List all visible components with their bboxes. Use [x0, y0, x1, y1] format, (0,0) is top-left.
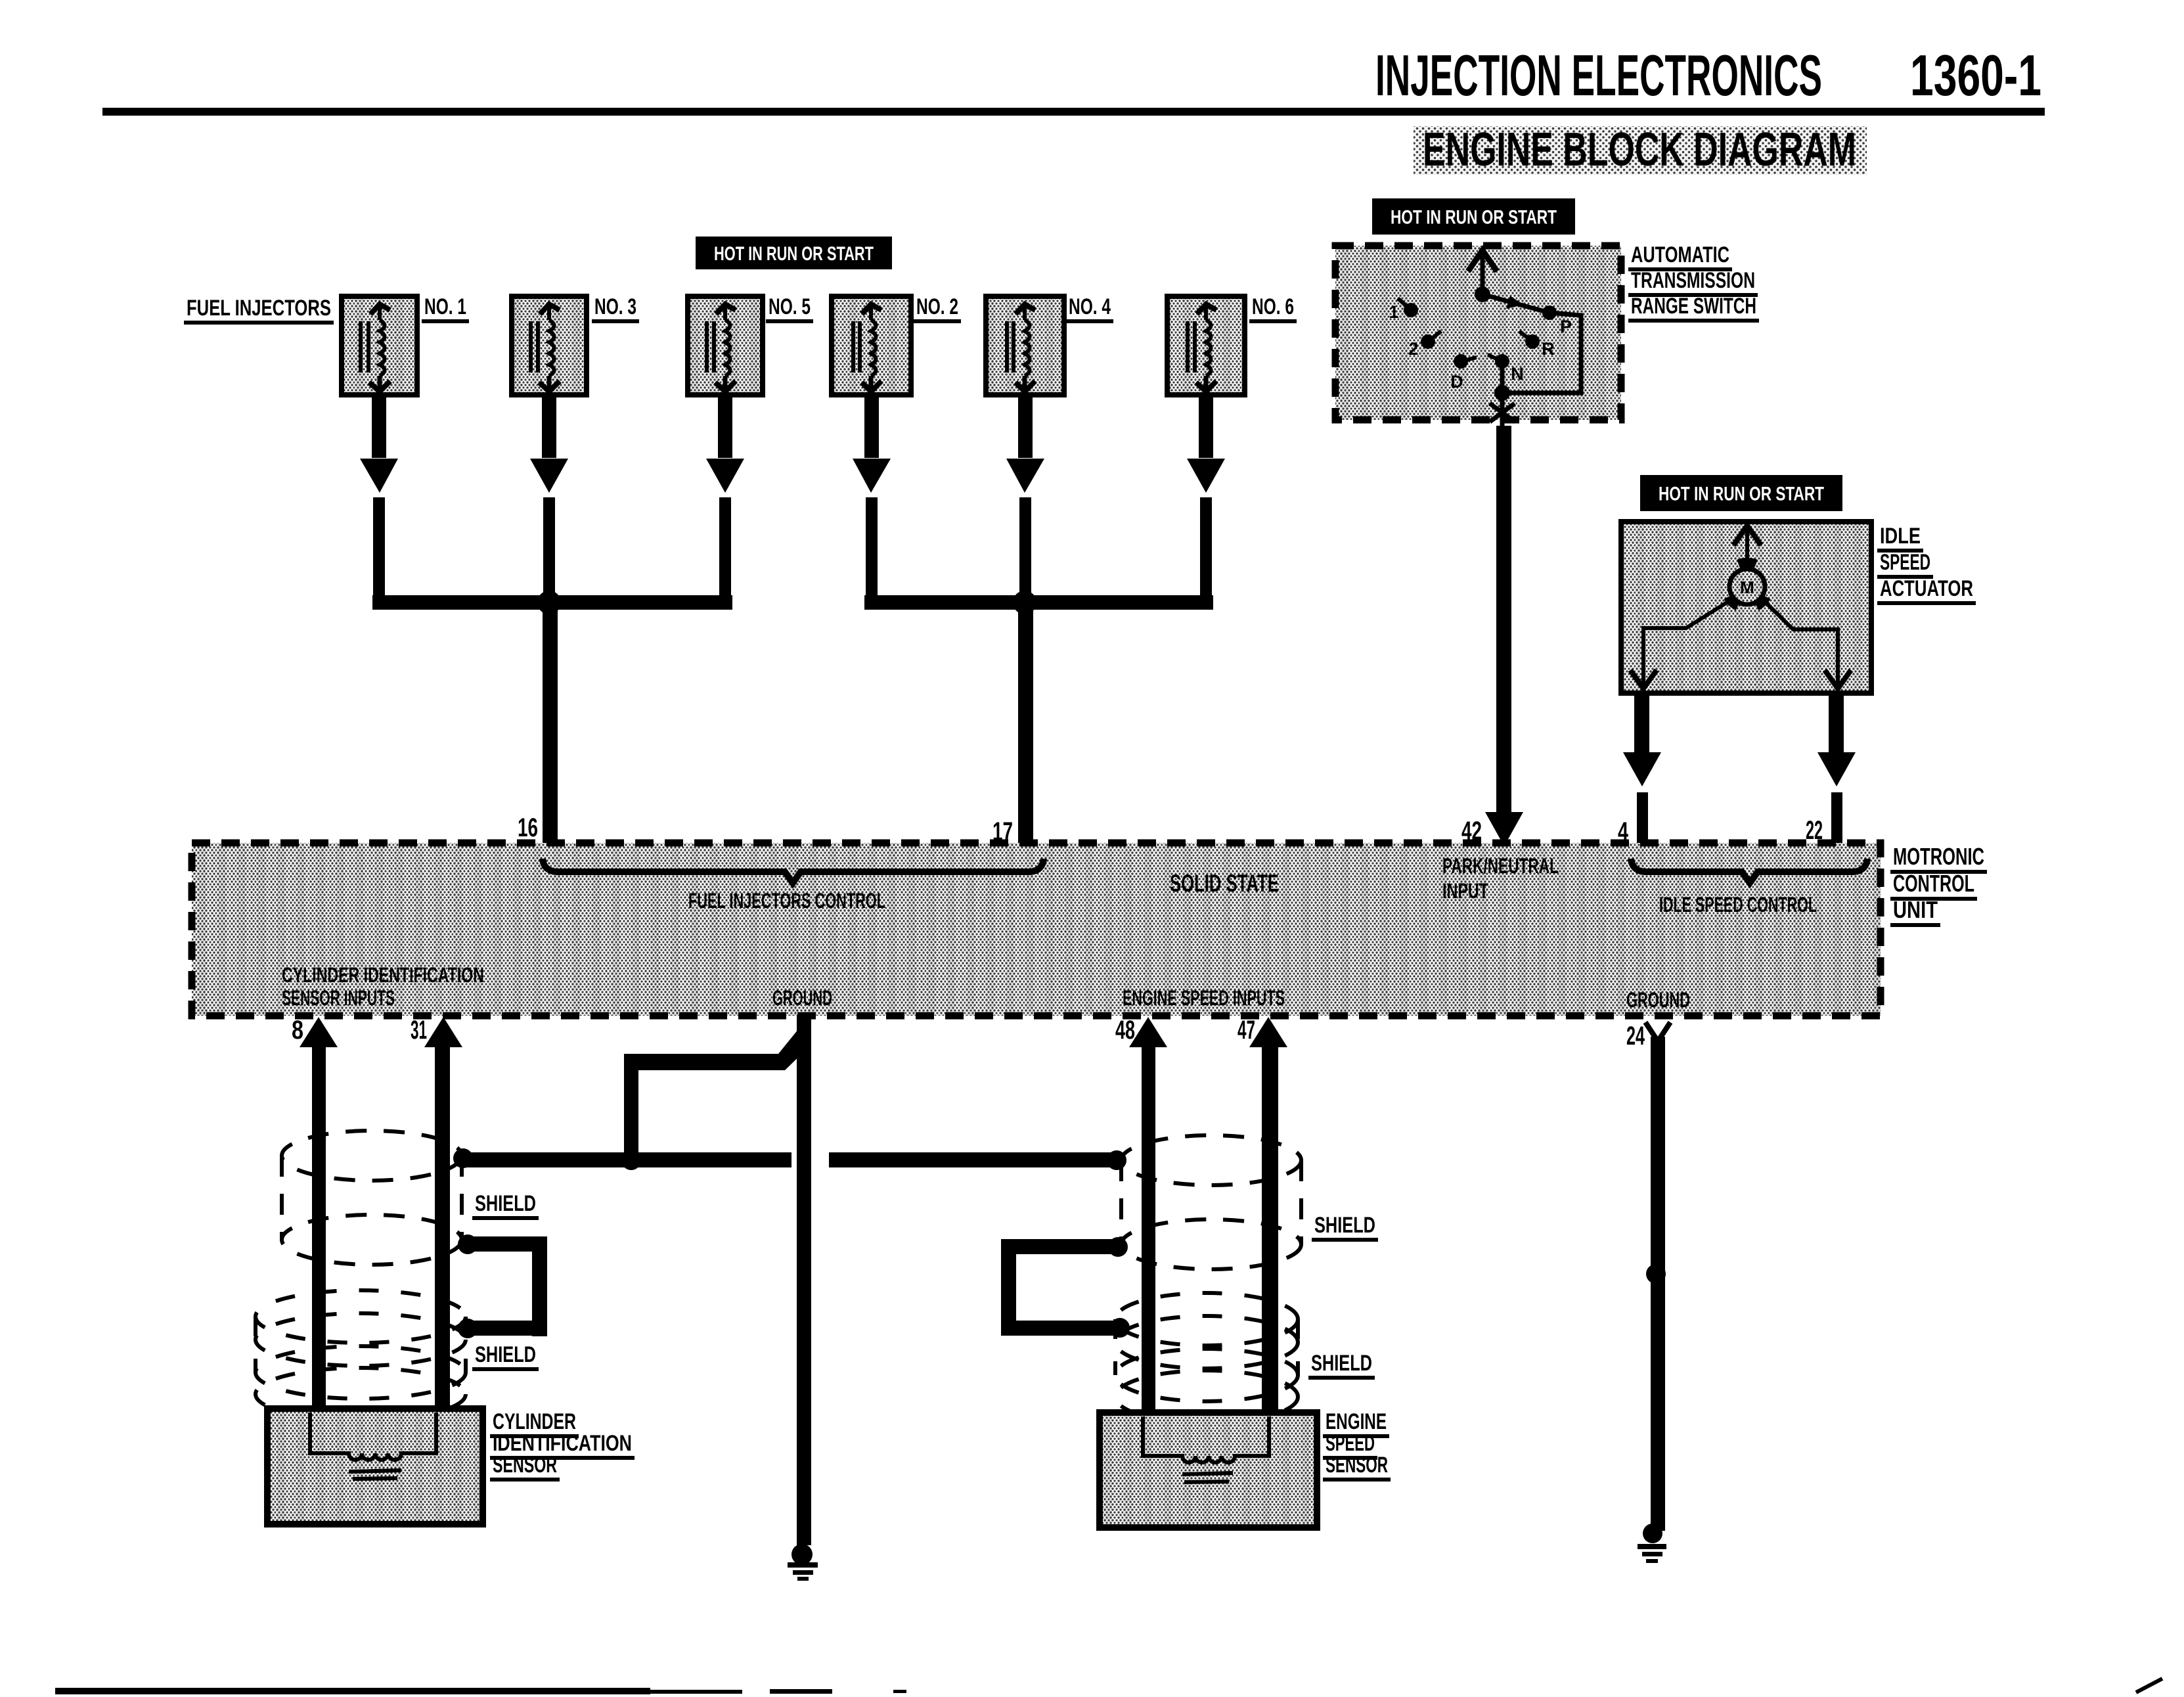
svg-text:SENSOR: SENSOR: [1326, 1453, 1388, 1478]
svg-text:48: 48: [1115, 1016, 1135, 1045]
svg-text:31: 31: [411, 1016, 427, 1045]
svg-text:P: P: [1560, 317, 1572, 336]
svg-text:1360-1: 1360-1: [1910, 43, 2041, 108]
svg-text:24: 24: [1626, 1022, 1645, 1051]
svg-text:17: 17: [992, 817, 1013, 846]
svg-text:SOLID STATE: SOLID STATE: [1170, 870, 1279, 897]
svg-text:SENSOR INPUTS: SENSOR INPUTS: [282, 986, 395, 1010]
svg-text:NO. 4: NO. 4: [1069, 294, 1111, 319]
svg-text:CONTROL: CONTROL: [1893, 870, 1974, 897]
svg-text:HOT IN RUN OR START: HOT IN RUN OR START: [1391, 207, 1557, 229]
svg-text:SENSOR: SENSOR: [493, 1453, 557, 1478]
svg-text:INPUT: INPUT: [1442, 879, 1488, 903]
svg-text:HOT IN RUN OR START: HOT IN RUN OR START: [714, 243, 874, 265]
svg-text:SPEED: SPEED: [1880, 550, 1930, 575]
svg-text:MOTRONIC: MOTRONIC: [1893, 843, 1984, 870]
svg-text:22: 22: [1806, 816, 1823, 845]
svg-text:RANGE SWITCH: RANGE SWITCH: [1631, 294, 1756, 319]
svg-text:GROUND: GROUND: [1626, 988, 1690, 1012]
svg-text:NO. 3: NO. 3: [594, 294, 636, 319]
svg-text:ENGINE BLOCK DIAGRAM: ENGINE BLOCK DIAGRAM: [1423, 124, 1856, 176]
svg-text:NO. 2: NO. 2: [916, 294, 958, 319]
svg-text:FUEL INJECTORS CONTROL: FUEL INJECTORS CONTROL: [688, 889, 885, 913]
svg-text:HOT IN RUN OR START: HOT IN RUN OR START: [1659, 484, 1824, 505]
svg-text:PARK/NEUTRAL: PARK/NEUTRAL: [1442, 854, 1559, 878]
svg-text:1: 1: [1389, 302, 1398, 322]
svg-text:16: 16: [518, 813, 538, 842]
svg-text:NO. 6: NO. 6: [1252, 294, 1294, 319]
svg-text:SHIELD: SHIELD: [475, 1342, 536, 1367]
svg-text:SHIELD: SHIELD: [475, 1191, 536, 1216]
svg-text:47: 47: [1237, 1016, 1255, 1045]
svg-text:AUTOMATIC: AUTOMATIC: [1631, 242, 1729, 267]
svg-text:IDLE SPEED CONTROL: IDLE SPEED CONTROL: [1659, 893, 1817, 916]
svg-text:INJECTION ELECTRONICS: INJECTION ELECTRONICS: [1375, 43, 1822, 108]
svg-text:NO. 5: NO. 5: [769, 294, 811, 319]
svg-text:SHIELD: SHIELD: [1311, 1351, 1372, 1376]
svg-text:IDLE: IDLE: [1880, 524, 1921, 549]
svg-text:M: M: [1740, 577, 1754, 597]
svg-text:D: D: [1450, 372, 1463, 392]
svg-text:NO. 1: NO. 1: [424, 294, 466, 319]
svg-text:SHIELD: SHIELD: [1314, 1213, 1375, 1238]
svg-text:ACTUATOR: ACTUATOR: [1880, 576, 1973, 601]
svg-text:4: 4: [1618, 817, 1629, 846]
svg-text:N: N: [1511, 364, 1524, 384]
svg-text:R: R: [1542, 339, 1555, 359]
svg-text:ENGINE SPEED INPUTS: ENGINE SPEED INPUTS: [1123, 986, 1285, 1010]
svg-text:CYLINDER IDENTIFICATION: CYLINDER IDENTIFICATION: [282, 963, 484, 987]
svg-text:GROUND: GROUND: [772, 986, 832, 1010]
svg-text:UNIT: UNIT: [1893, 896, 1938, 923]
svg-text:2: 2: [1408, 339, 1418, 359]
svg-text:42: 42: [1461, 817, 1482, 846]
svg-text:TRANSMISSION: TRANSMISSION: [1631, 268, 1755, 293]
svg-text:8: 8: [292, 1016, 303, 1045]
svg-text:FUEL INJECTORS: FUEL INJECTORS: [187, 296, 331, 321]
